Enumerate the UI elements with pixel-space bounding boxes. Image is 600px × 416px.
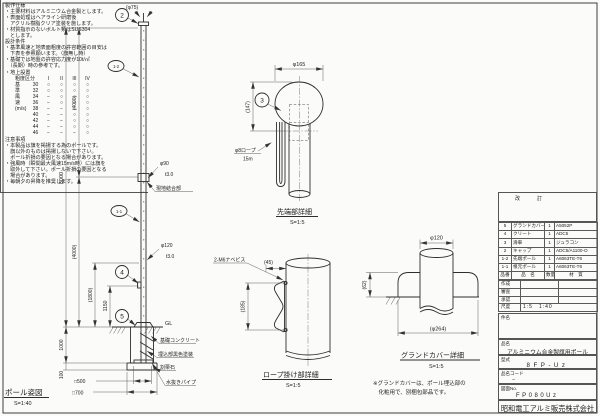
- signoff-row: 承認: [499, 296, 598, 304]
- rope-detail-title: ロープ掛け部詳細: [263, 370, 319, 379]
- signoff-empty-cell: [521, 288, 559, 296]
- hook-height-label: (185): [241, 300, 247, 312]
- cover-detail-title: グランドカバー詳細: [401, 351, 464, 360]
- signoff-empty-cell: [559, 281, 598, 289]
- subject-label: 件名: [501, 315, 510, 321]
- rope-detail-scale: S=1:5: [286, 383, 301, 389]
- bom-row: 5グランドカバー1A5052P: [499, 223, 598, 231]
- scale-value: 1:5 1:40: [521, 304, 598, 312]
- lower-thk-label: t3.0: [166, 254, 175, 260]
- signoff-row: 作成: [499, 281, 598, 289]
- lower-dia-label: φ120: [161, 243, 173, 249]
- concrete-label: 基礎コンクリート: [160, 337, 200, 344]
- bom-row: 1-1根元ポール1A6063TE-T6: [499, 263, 598, 271]
- product-code-value: −: [512, 377, 515, 383]
- balloon-cover-number: 5: [120, 314, 124, 321]
- balloon-pulley-number: 3: [260, 98, 264, 105]
- company-name: 昭和電工アルミ販売株式会社: [499, 404, 596, 414]
- elevation-title: ポール姿図: [5, 387, 43, 397]
- ground-cover-detail-drawing: φ120 (62) (φ264) グランドカバー詳細 S=1:5 ※グランドカバ…: [362, 236, 480, 397]
- tip-dia-label: φ165: [293, 62, 306, 68]
- field-joint-label: 現地結合部: [156, 185, 181, 192]
- signoff-row: 審査: [499, 288, 598, 296]
- embedded-paint-label: 埋込部黒色塗装: [158, 351, 193, 358]
- hook-width-label: (45): [264, 260, 273, 266]
- gravel-label: 割栗石: [160, 364, 175, 371]
- signoff-table: 作成 審査 承認 尺度1:5 1:40: [498, 280, 598, 312]
- dim-8000: 8000: [59, 172, 65, 184]
- drawing-no-box: 図面No. FP080Uz: [498, 384, 597, 400]
- revision-box: 改 訂: [498, 192, 597, 222]
- tip-detail-drawing: φ165 (147) 3 φ8ロープ 15m 先端部詳細 S=1:5: [234, 62, 323, 226]
- bom-table: 5グランドカバー1A5052P 4クリート1ADC5 3滑車1ジュラコン 2キャ…: [498, 222, 598, 280]
- bom-header-row: 品番品 名数量材 質: [499, 272, 598, 280]
- product-name-box: 品名 アルミニウム合金製旗用ポール: [498, 339, 597, 355]
- dim-1000: 1000: [59, 339, 65, 350]
- signoff-empty-cell: [559, 288, 598, 296]
- cover-note-line1: ※グランドカバーは、ポール埋込部の: [373, 379, 466, 387]
- signoff-block: 作成 審査 承認 尺度1:5 1:40: [498, 280, 597, 313]
- balloon-cleat-number: 4: [120, 270, 124, 277]
- model-box: 型式 8FP-Uz: [498, 355, 597, 369]
- bom-row: 4クリート1ADC5: [499, 231, 598, 239]
- dim-sq700: □700: [72, 391, 84, 397]
- drawing-no-value: FP080Uz: [516, 393, 559, 399]
- bom-row: 3滑車1ジュラコン: [499, 239, 598, 247]
- subject-box: 件名: [498, 313, 597, 339]
- screw-label: 2-M6ナベビス: [214, 257, 245, 264]
- balloon-base-pole-number: 1-1: [116, 209, 123, 214]
- dim-1150: 1150: [103, 300, 109, 311]
- signoff-empty-cell: [559, 296, 598, 304]
- model-value: 8FP-Uz: [499, 362, 596, 369]
- tip-detail-title: 先端部詳細: [277, 207, 312, 216]
- rope-hook-detail-drawing: 2-M6ナベビス (45) (185) ロープ掛け部詳細 S=1:5: [213, 254, 332, 389]
- dim-4000-lower: (4000): [72, 244, 78, 259]
- dim-1800: (1800): [88, 287, 94, 302]
- product-code-box: 品名コード −: [498, 369, 597, 384]
- parts-list: 5グランドカバー1A5052P 4クリート1ADC5 3滑車1ジュラコン 2キャ…: [498, 222, 597, 280]
- cover-od-label: (φ264): [430, 327, 447, 333]
- dim-sq500: □500: [74, 379, 86, 385]
- pole-elevation: (φ75) 8000 (4000) (4000) (1800) 1150 100…: [4, 5, 200, 407]
- drawing-no-label: 図面No.: [501, 386, 517, 392]
- joint-thk-label: t3.0: [165, 172, 174, 178]
- elevation-scale: S=1:40: [14, 401, 32, 407]
- dim-100: 100: [59, 371, 65, 380]
- signoff-empty-cell: [521, 281, 559, 289]
- cap-dia-label: (φ75): [126, 5, 138, 11]
- dim-4000-upper: (4000): [72, 95, 78, 110]
- cover-detail-scale: S=1:5: [429, 364, 444, 370]
- cover-note-line2: 化粧用で、別梱包部品です。: [373, 388, 449, 396]
- company-box: 昭和電工アルミ販売株式会社: [498, 400, 597, 413]
- bom-row: 1-2先端ポール1A6063TE-T6: [499, 255, 598, 263]
- balloon-tip-pole-number: 1-2: [113, 64, 120, 69]
- rope-spec-label: φ8ロープ: [235, 148, 256, 154]
- cover-pole-dia-label: φ120: [430, 236, 443, 242]
- revision-label: 改 訂: [515, 195, 548, 202]
- tip-height-label: (147): [246, 101, 252, 113]
- balloon-cap-number: 2: [120, 13, 124, 20]
- signoff-empty-cell: [521, 296, 559, 304]
- bom-row: 2キャップ1ADC5/A1100-O: [499, 247, 598, 255]
- drain-pipe-label: 水抜きパイプ: [166, 379, 196, 386]
- tip-detail-scale: S=1:5: [290, 220, 305, 226]
- cover-height-label: (62): [362, 280, 368, 289]
- scale-row: 尺度1:5 1:40: [499, 304, 598, 312]
- gl-label: GL: [165, 321, 172, 327]
- joint-dia-label: φ90: [160, 161, 169, 167]
- rope-length-label: 15m: [243, 157, 253, 163]
- drawing-sheet: (φ75) 8000 (4000) (4000) (1800) 1150 100…: [0, 0, 600, 416]
